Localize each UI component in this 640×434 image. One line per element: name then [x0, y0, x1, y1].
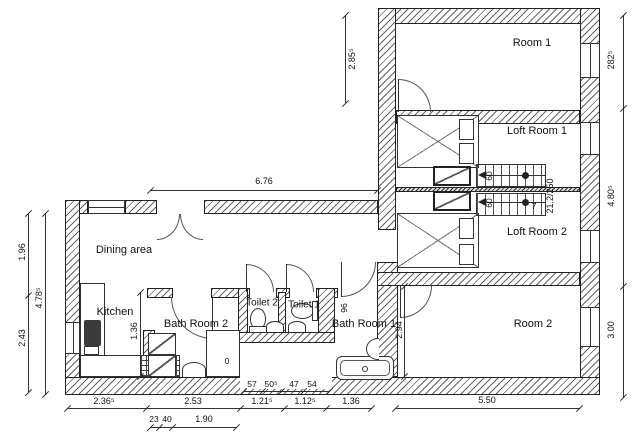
dim-label: 4.80⁵ [606, 185, 616, 206]
door-arc-toilet1 [286, 264, 314, 292]
dim-label: 2.43 [17, 329, 27, 347]
room-label-toilet2: Toilet 2 [246, 298, 278, 309]
room-label-room1: Room 1 [513, 37, 552, 49]
dim-label: 2.85⁵ [347, 48, 357, 69]
dim-label-stair-count: 7 [532, 201, 537, 211]
window [65, 322, 80, 354]
dim-label: 1.36 [129, 322, 139, 340]
dim-line [395, 408, 580, 409]
door-arc-bath1 [341, 262, 376, 297]
dim-label-stair-width: 60 [484, 198, 494, 207]
pillow [459, 119, 474, 140]
dim-label: 1.90 [195, 414, 213, 424]
dim-line [150, 427, 237, 428]
stair-start-dot [522, 172, 529, 179]
entry-door-right [180, 214, 203, 240]
dim-label: 5.50 [478, 395, 496, 405]
door-arc-room1 [398, 79, 431, 112]
door-leaf [398, 79, 399, 112]
wall-toilet-bottom [238, 332, 335, 343]
wall-segment [204, 200, 378, 214]
dim-label-stair-width: 60 [484, 171, 494, 180]
dim-label: 47 [289, 379, 298, 389]
dim-label: 1.12⁵ [294, 396, 315, 406]
room-label-loft2: Loft Room 2 [507, 226, 567, 238]
bathtub-drain [362, 366, 368, 372]
floor-plan: Room 1 Loft Room 1 Loft Room 2 Room 2 Di… [0, 0, 640, 434]
door-leaf [246, 264, 247, 292]
dim-label: 1.36 [342, 396, 360, 406]
room-label-bath2: Bath Room 2 [164, 318, 228, 330]
window [580, 43, 600, 78]
washbasin [266, 321, 284, 332]
pillow [459, 143, 474, 164]
dim-line [243, 391, 330, 392]
fixture-mark: 0 [225, 356, 230, 366]
wall-bath2-top [147, 288, 173, 298]
room-label-loft1: Loft Room 1 [507, 125, 567, 137]
cabinet [206, 330, 240, 377]
dim-label: 2.36⁵ [93, 396, 114, 406]
dim-label: 4.78⁵ [34, 287, 44, 308]
shower [148, 355, 176, 377]
wardrobe [433, 191, 471, 211]
wall-segment [125, 200, 157, 214]
kitchen-appliance [84, 346, 99, 355]
dim-label: 50⁵ [265, 379, 278, 389]
dim-label: 282⁵ [606, 51, 616, 70]
window [580, 230, 600, 263]
dim-label: 57 [247, 379, 256, 389]
window [580, 122, 600, 155]
washbasin [182, 362, 206, 377]
door-arc-toilet2 [246, 264, 274, 292]
room-label-toilet1: Toilet 1 [288, 300, 320, 311]
washbasin [288, 321, 306, 332]
wall-segment [378, 8, 396, 230]
dim-line [345, 15, 346, 103]
window [580, 307, 600, 347]
window [88, 200, 125, 214]
toilet-tank [249, 326, 267, 333]
dim-label: 2.53 [184, 396, 202, 406]
stair-start-dot [522, 199, 529, 206]
dim-label: 96 [339, 303, 349, 312]
dim-label: 2.94 [394, 321, 404, 339]
wall-segment [378, 8, 600, 24]
door-leaf [400, 286, 401, 318]
dim-label: 3.00 [606, 321, 616, 339]
door-leaf [286, 264, 287, 292]
room-label-dining: Dining area [96, 244, 152, 256]
dim-line [623, 15, 624, 398]
dim-label: 6.76 [255, 176, 273, 186]
dim-line [140, 292, 141, 377]
dim-label: 54 [307, 379, 316, 389]
dim-line [404, 286, 405, 377]
dim-line [150, 190, 378, 191]
kitchen-sink [84, 320, 101, 346]
dim-label: 40 [162, 414, 171, 424]
wall-segment [65, 377, 600, 395]
shower [148, 333, 176, 355]
dim-label: 1.96 [17, 243, 27, 261]
room-label-bath1: Bath Room 1 [332, 318, 396, 330]
wall-segment [65, 200, 80, 395]
dim-line [28, 213, 29, 392]
dim-label-stair-spec: 21.2/250 [545, 178, 555, 213]
dim-label: 23 [149, 414, 158, 424]
dim-label: 1.21⁵ [251, 396, 272, 406]
door-leaf [341, 262, 342, 297]
room-label-kitchen: Kitchen [97, 306, 134, 318]
pillow [459, 218, 474, 239]
wardrobe [433, 166, 471, 186]
dim-line [45, 213, 46, 395]
pillow [459, 244, 474, 265]
entry-door-left [157, 214, 180, 240]
room-label-room2: Room 2 [514, 318, 553, 330]
